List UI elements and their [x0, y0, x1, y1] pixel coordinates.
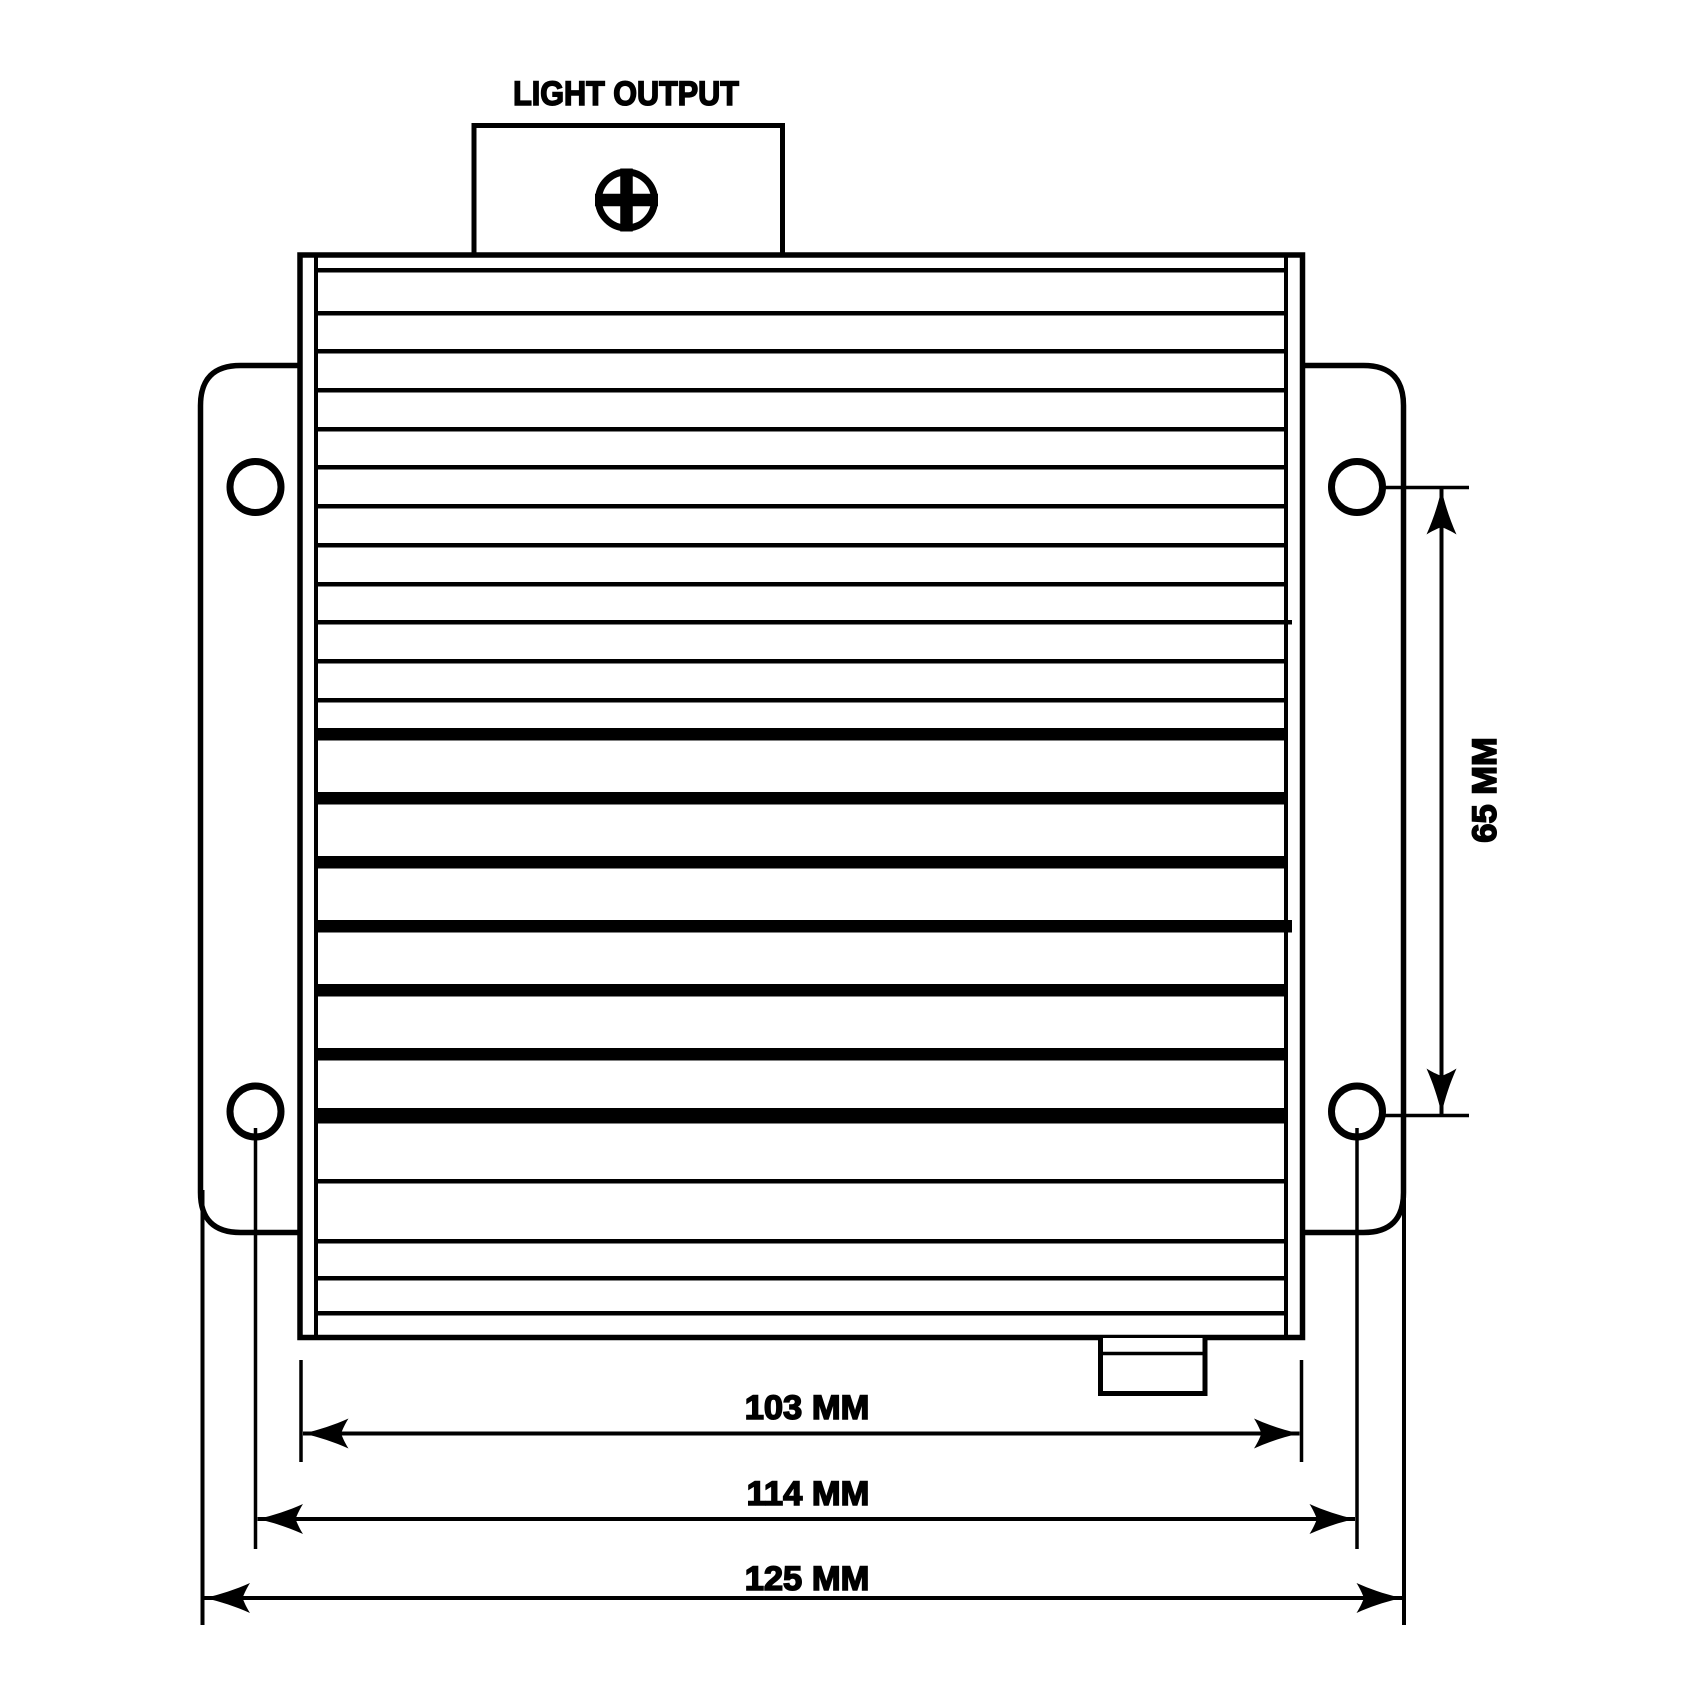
svg-text:103 MM: 103 MM [745, 1389, 870, 1427]
svg-text:125 MM: 125 MM [745, 1560, 870, 1598]
svg-text:65 MM: 65 MM [1466, 737, 1504, 842]
svg-text:114 MM: 114 MM [747, 1475, 870, 1513]
svg-text:LIGHT OUTPUT: LIGHT OUTPUT [513, 73, 739, 112]
